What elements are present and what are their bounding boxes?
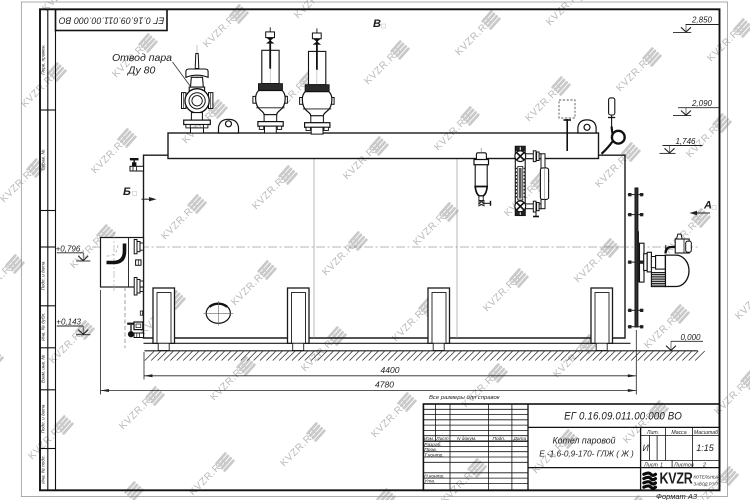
svg-text:4400: 4400 [381, 365, 400, 375]
svg-text:Е -1,6-0,9-170- ГЛЖ ( Ж ): Е -1,6-0,9-170- ГЛЖ ( Ж ) [539, 450, 634, 459]
svg-text:Ду 80: Ду 80 [127, 65, 156, 77]
svg-text:ЗАВОД РЭП: ЗАВОД РЭП [694, 482, 719, 487]
svg-text:Лит.: Лит. [646, 430, 659, 436]
svg-text:Отвод пара: Отвод пара [112, 52, 172, 64]
svg-text:Справ. №: Справ. № [41, 150, 46, 171]
svg-text:0,000: 0,000 [680, 333, 701, 342]
svg-text:+0,143: +0,143 [56, 318, 81, 327]
svg-text:Листов: Листов [673, 463, 694, 469]
svg-text:2: 2 [702, 463, 706, 469]
svg-text:Изм.: Изм. [424, 436, 434, 442]
svg-text:Котел паровой: Котел паровой [552, 436, 615, 446]
svg-text:4780: 4780 [375, 380, 394, 390]
svg-text:В: В [373, 18, 381, 30]
svg-text:ЕГ 0.16.09.011.00.000 ВО: ЕГ 0.16.09.011.00.000 ВО [564, 410, 682, 423]
svg-text:Подп. и дата: Подп. и дата [41, 261, 46, 290]
svg-text:Подп. и дата: Подп. и дата [41, 404, 46, 433]
svg-text:Лист: Лист [435, 436, 448, 442]
svg-text:Пров.: Пров. [424, 447, 437, 453]
svg-text:Т.контр.: Т.контр. [424, 452, 443, 458]
svg-text:Масса: Масса [671, 430, 686, 436]
svg-text:И: И [643, 443, 650, 453]
svg-text:Дата: Дата [513, 436, 527, 442]
svg-text:Формат А3: Формат А3 [656, 492, 698, 500]
svg-text:2,090: 2,090 [691, 99, 713, 108]
svg-text:Лист: Лист [643, 463, 658, 469]
svg-text:2,850: 2,850 [691, 16, 713, 25]
svg-text:KVZR: KVZR [660, 470, 694, 488]
svg-text:ЕГ 0.16.09.011.00.000 ВО: ЕГ 0.16.09.011.00.000 ВО [59, 16, 165, 26]
svg-text:Н.контр.: Н.контр. [424, 473, 444, 479]
svg-text:Инв. № подл.: Инв. № подл. [41, 455, 46, 484]
svg-text:Разраб.: Разраб. [424, 442, 441, 448]
svg-text:Все размеры для справок: Все размеры для справок [429, 395, 500, 401]
svg-text:Взам. инв. №: Взам. инв. № [41, 355, 46, 383]
svg-text:1,746: 1,746 [675, 137, 696, 146]
svg-text:1: 1 [660, 463, 663, 469]
svg-text:Б: Б [123, 186, 131, 198]
svg-text:А: А [703, 200, 712, 212]
svg-text:Перв. примен.: Перв. примен. [41, 44, 46, 75]
svg-text:Утв.: Утв. [424, 479, 435, 485]
svg-text:1:15: 1:15 [696, 443, 715, 453]
svg-text:Подп.: Подп. [493, 436, 506, 442]
svg-text:Масштаб: Масштаб [694, 430, 719, 436]
svg-text:КОТЕЛЬНЫЙ: КОТЕЛЬНЫЙ [694, 475, 720, 480]
svg-text:N докум.: N докум. [457, 436, 476, 442]
svg-text:+0,796: +0,796 [56, 245, 81, 254]
svg-text:Инв. № дубл.: Инв. № дубл. [41, 313, 46, 341]
